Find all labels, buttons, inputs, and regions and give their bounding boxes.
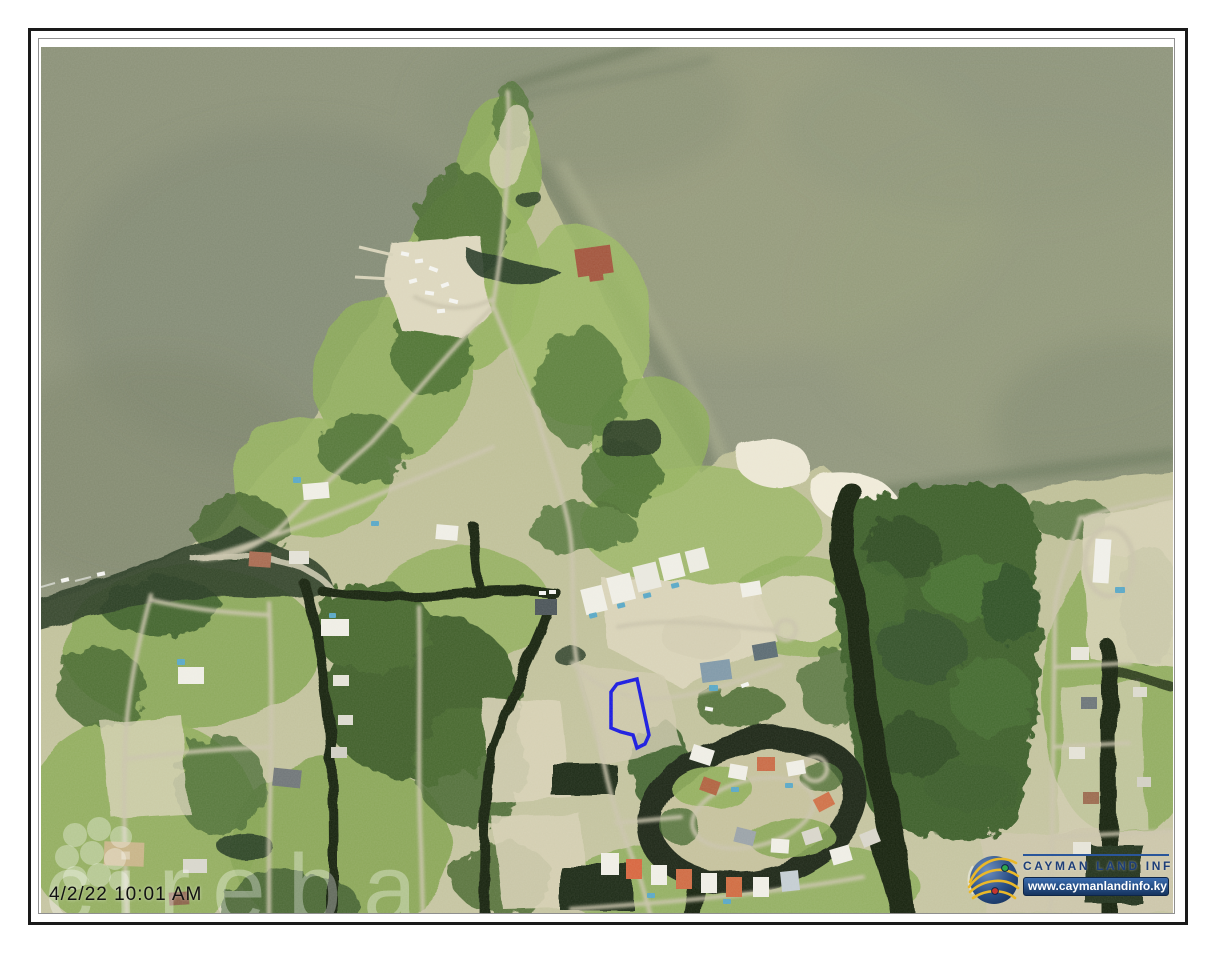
photo-grain-overlay bbox=[41, 47, 1173, 913]
capture-timestamp: 4/2/22 10:01 AM bbox=[49, 884, 202, 906]
aerial-photo bbox=[41, 47, 1173, 913]
aerial-map[interactable]: cireba 4/2/22 10:01 AM CAYMAN LAND INFO bbox=[41, 47, 1173, 913]
provider-name: CAYMAN LAND INFO bbox=[1023, 854, 1169, 873]
provider-logo: CAYMAN LAND INFO www.caymanlandinfo.ky bbox=[967, 848, 1169, 908]
globe-orbits-icon bbox=[967, 852, 1021, 908]
provider-website: www.caymanlandinfo.ky bbox=[1023, 877, 1169, 896]
map-sheet: cireba 4/2/22 10:01 AM CAYMAN LAND INFO bbox=[0, 0, 1216, 954]
